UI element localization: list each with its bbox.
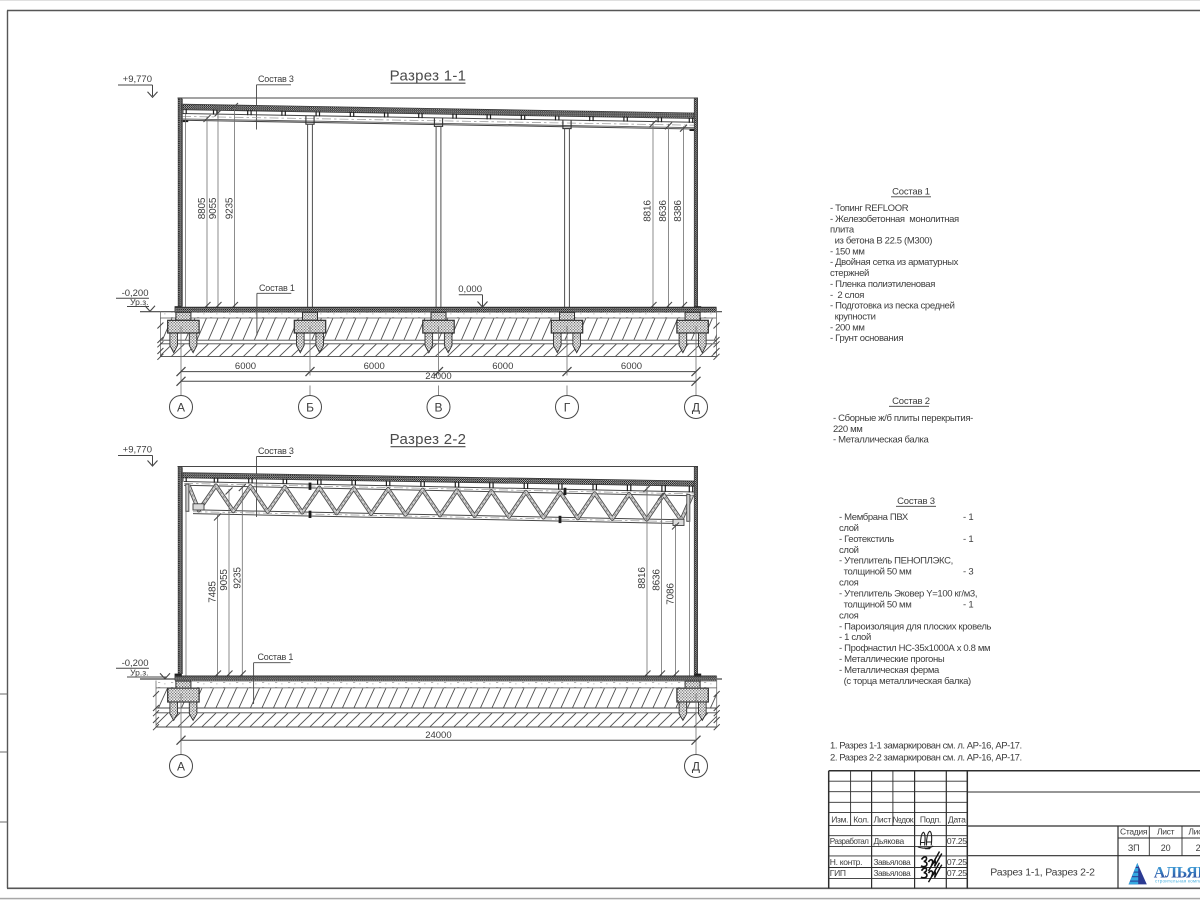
svg-text:- Профнастил НС-35х1000А х 0.8: - Профнастил НС-35х1000А х 0.8 мм [839,643,990,654]
svg-text:- Сборные ж/б плиты перекрытия: - Сборные ж/б плиты перекрытия- [833,413,973,424]
svg-text:- Топинг REFLOOR: - Топинг REFLOOR [830,203,909,214]
svg-text:Состав 1: Состав 1 [258,652,294,662]
svg-text:+9,770: +9,770 [123,74,152,85]
svg-text:0,000: 0,000 [458,284,482,295]
svg-text:6000: 6000 [364,361,385,372]
svg-text:толщиной 50 мм: толщиной 50 мм [839,567,911,578]
svg-text:слой: слой [839,545,859,556]
svg-text:- 1: - 1 [963,512,974,523]
svg-text:- Утеплитель Эковер Y=100 кг/м: - Утеплитель Эковер Y=100 кг/м3, [839,589,977,600]
svg-text:2. Разрез 2-2 замаркирован см.: 2. Разрез 2-2 замаркирован см. л. АР-16,… [830,753,1022,764]
svg-text:Лист: Лист [1188,826,1200,836]
svg-text:- Грунт основания: - Грунт основания [830,333,903,344]
svg-text:8816: 8816 [643,200,654,222]
svg-text:стержней: стержней [830,268,869,279]
svg-text:6000: 6000 [235,361,256,372]
svg-text:220 мм: 220 мм [833,424,862,435]
svg-text:24000: 24000 [425,730,451,741]
svg-text:(с торца металлическая балка): (с торца металлическая балка) [839,676,971,687]
svg-text:Ур.з.: Ур.з. [130,297,148,307]
svg-text:9235: 9235 [225,197,236,219]
svg-text:Дата: Дата [948,814,966,824]
svg-text:Разрез 1-1: Разрез 1-1 [390,68,467,85]
svg-text:- Пленка полиэтиленовая: - Пленка полиэтиленовая [830,279,935,290]
svg-text:слой: слой [839,523,859,534]
svg-text:Ур.з.: Ур.з. [130,667,148,677]
svg-text:строительная компания: строительная компания [1155,879,1200,884]
svg-text:Состав 2: Состав 2 [892,396,930,407]
svg-text:ГИП: ГИП [830,868,846,878]
svg-text:толщиной 50 мм: толщиной 50 мм [839,599,911,610]
svg-text:Подп.: Подп. [920,814,941,824]
svg-text:Изм.: Изм. [831,814,848,824]
svg-text:А: А [177,759,185,773]
svg-text:9055: 9055 [219,569,230,591]
svg-text:8816: 8816 [637,567,648,589]
svg-text:- Мембрана ПВХ: - Мембрана ПВХ [839,512,909,523]
svg-text:- Подготовка из песка средней: - Подготовка из песка средней [830,301,955,312]
svg-text:20: 20 [1161,843,1171,853]
svg-text:- Утеплитель ПЕНОПЛЭКС,: - Утеплитель ПЕНОПЛЭКС, [839,556,953,567]
svg-text:6000: 6000 [621,361,642,372]
svg-text:№док.: №док. [893,814,916,824]
svg-text:Д: Д [692,759,700,773]
svg-text:Состав 1: Состав 1 [259,283,295,293]
svg-text:- 1 слой: - 1 слой [839,632,871,643]
svg-text:+9,770: +9,770 [123,445,152,456]
svg-text:9055: 9055 [208,197,219,219]
svg-text:- 2 слоя: - 2 слоя [830,290,864,301]
svg-text:плита: плита [830,225,855,236]
svg-text:- Двойная сетка из арматурных: - Двойная сетка из арматурных [830,257,959,268]
svg-text:Разрез 2-2: Разрез 2-2 [390,431,467,448]
svg-text:Дьякова: Дьякова [874,836,905,846]
svg-text:Лист: Лист [1157,826,1175,836]
svg-text:2: 2 [1196,843,1200,853]
svg-text:Н. контр.: Н. контр. [830,857,862,867]
svg-text:Состав 1: Состав 1 [892,187,930,198]
svg-text:Разрез 1-1, Разрез 2-2: Разрез 1-1, Разрез 2-2 [990,866,1095,878]
svg-text:07.25: 07.25 [947,836,967,846]
svg-text:- Железобетонная монолитная: - Железобетонная монолитная [830,214,959,225]
svg-text:- Металлическая ферма: - Металлическая ферма [839,665,940,676]
svg-text:6000: 6000 [492,361,513,372]
svg-text:слоя: слоя [839,578,859,589]
svg-text:7485: 7485 [208,581,219,603]
svg-text:В: В [434,400,442,414]
svg-text:9235: 9235 [232,567,243,589]
svg-text:Завьялова: Завьялова [874,869,912,878]
svg-text:крупности: крупности [830,312,876,323]
svg-text:- Геотекстиль: - Геотекстиль [839,534,894,545]
svg-text:- Пароизоляция для плоских кро: - Пароизоляция для плоских кровель [839,621,992,632]
svg-text:Завьялова: Завьялова [874,858,912,867]
svg-text:8636: 8636 [658,200,669,222]
svg-text:Г: Г [564,400,571,414]
svg-text:Стадия: Стадия [1120,826,1148,836]
svg-text:Д: Д [692,400,700,414]
svg-text:8805: 8805 [197,197,208,219]
svg-text:Кол.: Кол. [853,814,869,824]
svg-text:Состав 3: Состав 3 [897,496,935,507]
svg-text:Б: Б [306,400,314,414]
svg-text:- Металлические прогоны: - Металлические прогоны [839,654,945,665]
svg-text:из бетона В 22.5 (М300): из бетона В 22.5 (М300) [830,236,932,247]
svg-text:8386: 8386 [673,200,684,222]
svg-text:- 150 мм: - 150 мм [830,246,865,257]
svg-text:- 1: - 1 [963,599,974,610]
svg-text:1. Разрез 1-1 замаркирован см.: 1. Разрез 1-1 замаркирован см. л. АР-16,… [830,741,1022,752]
svg-text:- Металлическая балка: - Металлическая балка [833,435,930,446]
svg-text:А: А [177,400,185,414]
svg-text:- 1: - 1 [963,534,974,545]
svg-text:7086: 7086 [666,583,677,605]
svg-text:07.25: 07.25 [947,857,967,867]
svg-text:- 3: - 3 [963,567,974,578]
svg-text:ЗП: ЗП [1128,843,1140,853]
svg-text:Лист: Лист [874,814,892,824]
svg-text:Состав 3: Состав 3 [258,446,294,456]
svg-text:Разработал: Разработал [830,837,869,846]
svg-text:- 200 мм: - 200 мм [830,322,865,333]
svg-text:24000: 24000 [425,371,451,382]
svg-text:Состав 3: Состав 3 [258,74,294,84]
svg-text:07.25: 07.25 [947,868,967,878]
svg-text:8636: 8636 [652,569,663,591]
svg-text:слоя: слоя [839,610,859,621]
